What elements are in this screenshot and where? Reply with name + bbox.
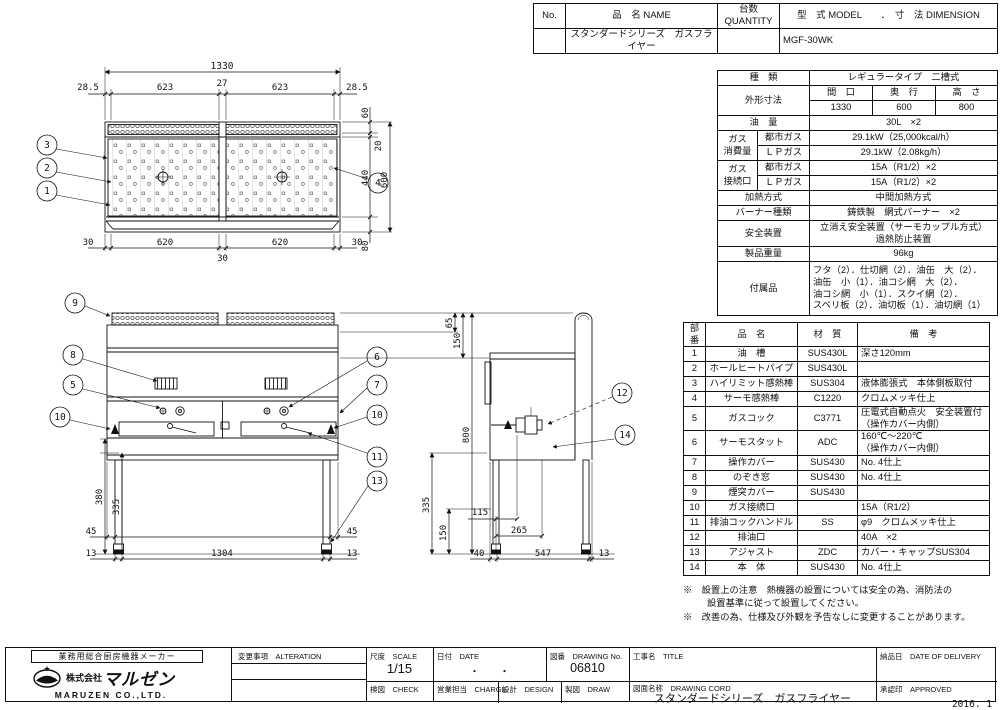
spec-burner-value: 鋳鉄製 網式バーナー ×2 (810, 206, 998, 221)
parts-row: 12排油口40A ×2 (684, 530, 990, 545)
dwg-no-value: 06810 (546, 661, 629, 675)
date-value: ・ ・ (433, 663, 546, 678)
spec-use-city-value: 29.1kW（25,000kcal/h） (810, 131, 998, 146)
part-name: ハイリミット感熱棒 (706, 377, 798, 392)
part-note: クロムメッキ仕上 (858, 392, 990, 407)
dim-overall-width: 1330 (211, 61, 234, 72)
part-mat: SUS430L (798, 362, 858, 377)
part-mat: SUS430 (798, 470, 858, 485)
balloon-6: 6 (374, 352, 380, 363)
charge-label: 営業担当 CHARGE (437, 684, 507, 695)
part-mat: SS (798, 515, 858, 530)
part-name: ガス接続口 (706, 500, 798, 515)
part-name: のぞき窓 (706, 470, 798, 485)
dim-tank1-width: 623 (157, 83, 173, 93)
part-mat: SUS304 (798, 377, 858, 392)
part-name: 本 体 (706, 560, 798, 575)
company-prefix: 株式会社 (66, 671, 102, 684)
dim-front-inset: 40 (474, 549, 485, 559)
dim-back-inset: 13 (599, 549, 610, 559)
part-mat (798, 500, 858, 515)
spec-heat-value: 中間加熱方式 (810, 191, 998, 206)
top-view (88, 67, 392, 251)
dim-drain-offset: 265 (511, 526, 527, 536)
part-no: 9 (684, 485, 706, 500)
spec-weight-label: 製品重量 (718, 247, 810, 262)
parts-row: 11排油コックハンドルSSφ9 クロムメッキ仕上 (684, 515, 990, 530)
balloon-5: 5 (70, 380, 76, 391)
dim-top-section: 150 (453, 333, 463, 349)
check-label: 検図 CHECK (370, 684, 419, 695)
issue-date: 2016. 1 (952, 699, 992, 710)
part-note: No. 4仕上 (858, 470, 990, 485)
parts-row: 6サーモスタットADC160℃～220℃ （操作カバー内側） (684, 431, 990, 455)
part-name: アジャスト (706, 545, 798, 560)
part-no: 5 (684, 407, 706, 431)
header-qty-value (718, 28, 780, 53)
parts-col-mat: 材 質 (798, 323, 858, 347)
balloon-8: 8 (70, 350, 76, 361)
alteration-label: 変更事項 ALTERATION (238, 651, 321, 662)
parts-row: 10ガス接続口15A（R1/2） (684, 500, 990, 515)
part-mat: SUS430L (798, 347, 858, 362)
parts-row: 2ホールヒートパイプSUS430L (684, 362, 990, 377)
dim-height-gas: 335 (112, 499, 122, 515)
spec-conn-lp-value: 15A（R1/2）×2 (810, 176, 998, 191)
header-col-name: 品 名 NAME (566, 4, 718, 29)
parts-row: 9煙突カバーSUS430 (684, 485, 990, 500)
project-title-label: 工事名 TITLE (633, 651, 683, 662)
note-line-1: ※ 設置上の注意 熱機器の設置については安全の為、消防法の (683, 584, 995, 597)
drawing-sheet: No. 品 名 NAME 台数 QUANTITY 型 式 MODEL ． 寸 法… (0, 0, 1000, 710)
spec-dim-w-label: 間 口 (810, 86, 873, 101)
dim-left-margin: 28.5 (77, 83, 99, 93)
dim-bottom-left: 30 (83, 238, 94, 248)
dim-side-leg-height: 150 (439, 525, 449, 541)
gas-cock-assembly-icon (491, 407, 542, 434)
part-note (858, 362, 990, 377)
spec-gas-conn-label: ガス 接続口 (718, 161, 758, 191)
part-no: 2 (684, 362, 706, 377)
dim-leg-width-left: 13 (86, 549, 97, 559)
note-line-3: ※ 改善の為、仕様及び外観を予告なしに変更することがあります。 (683, 611, 995, 624)
part-name: 油 槽 (706, 347, 798, 362)
spec-conn-city-label: 都市ガス (758, 161, 810, 176)
part-mat: C3771 (798, 407, 858, 431)
design-label: 設計 DESIGN (502, 684, 553, 695)
parts-row: 7操作カバーSUS430No. 4仕上 (684, 455, 990, 470)
chimney-outline (575, 313, 592, 460)
dim-depth-rear: 60 (361, 108, 371, 119)
spec-oil-value: 30L ×2 (810, 116, 998, 131)
dim-bottom-tank2: 620 (272, 238, 288, 248)
installation-notes: ※ 設置上の注意 熱機器の設置については安全の為、消防法の 設置基準に従って設置… (683, 584, 995, 624)
spec-kind-label: 種 類 (718, 71, 810, 86)
part-no: 12 (684, 530, 706, 545)
part-no: 6 (684, 431, 706, 455)
part-mat: C1220 (798, 392, 858, 407)
part-mat (798, 530, 858, 545)
spec-dim-w-value: 1330 (810, 101, 873, 116)
part-no: 7 (684, 455, 706, 470)
balloon-4: 4 (375, 178, 381, 189)
spec-oil-label: 油 量 (718, 116, 810, 131)
spec-safety-value: 立消え安全装置（サーモカップル方式） 過熱防止装置 (810, 221, 998, 247)
drawing-area: 1330 28.5 623 27 623 28.5 30 620 620 30 … (0, 45, 660, 645)
drain-cock-handle-icon (168, 424, 311, 434)
parts-row: 4サーモ感熱棒C1220クロムメッキ仕上 (684, 392, 990, 407)
part-note: 深さ120mm (858, 347, 990, 362)
part-note: No. 4仕上 (858, 560, 990, 575)
front-view (90, 313, 573, 562)
spec-dim-label: 外形寸法 (718, 86, 810, 116)
front-view-dim-lines (100, 313, 573, 562)
parts-col-name: 品 名 (706, 323, 798, 347)
delivery-date-label: 納品日 DATE OF DELIVERY (880, 651, 981, 662)
part-no: 8 (684, 470, 706, 485)
gas-inlet-marker-icon (111, 424, 119, 434)
parts-row: 1油 槽SUS430L深さ120mm (684, 347, 990, 362)
spec-gas-use-label: ガス 消費量 (718, 131, 758, 161)
dim-depth-front: 80 (361, 241, 371, 252)
part-note: φ9 クロムメッキ仕上 (858, 515, 990, 530)
balloon-7: 7 (374, 380, 380, 391)
dim-leg-inset-left: 45 (86, 527, 97, 537)
part-note: 圧電式自動点火 安全装置付 （操作カバー内側） (858, 407, 990, 431)
part-name: ホールヒートパイプ (706, 362, 798, 377)
part-name: 操作カバー (706, 455, 798, 470)
spec-dim-d-value: 600 (873, 101, 936, 116)
spec-dim-d-label: 奥 行 (873, 86, 936, 101)
spec-safety-label: 安全装置 (718, 221, 810, 247)
spec-kind-value: レギュラータイプ 二槽式 (810, 71, 998, 86)
approved-label: 承認印 APPROVED (880, 684, 952, 695)
gas-inlet-marker-icon (327, 424, 335, 434)
maker-tagline: 業務用総合厨房機器メーカー (31, 650, 203, 663)
model-number: MGF-30WK (780, 28, 998, 53)
spec-weight-value: 96kg (810, 247, 998, 262)
balloon-11: 11 (371, 452, 383, 463)
dim-bottom-tank1: 620 (157, 238, 173, 248)
spec-dim-h-label: 高 さ (936, 86, 998, 101)
part-mat: ZDC (798, 545, 858, 560)
part-note: 160℃～220℃ （操作カバー内側） (858, 431, 990, 455)
parts-col-note: 備 考 (858, 323, 990, 347)
company-block: 業務用総合厨房機器メーカー 株式会社 マルゼン MARUZEN CO.,LTD. (6, 648, 231, 703)
part-note: 15A（R1/2） (858, 500, 990, 515)
part-note: No. 4仕上 (858, 455, 990, 470)
dim-height-drain: 380 (95, 489, 105, 505)
draw-label: 製図 DRAW (565, 684, 610, 695)
part-no: 4 (684, 392, 706, 407)
spec-table: 種 類 レギュラータイプ 二槽式 外形寸法 間 口 奥 行 高 さ 1330 6… (717, 70, 998, 316)
balloon-12: 12 (616, 388, 627, 399)
dim-leg-width-right: 13 (347, 549, 358, 559)
balloon-2: 2 (44, 163, 50, 174)
part-name: ガスコック (706, 407, 798, 431)
maruzen-logo-icon (32, 666, 62, 688)
parts-row: 14本 体SUS430No. 4仕上 (684, 560, 990, 575)
dim-depth-total: 600 (380, 172, 390, 188)
parts-row: 3ハイリミット感熱棒SUS304液体膨張式 本体側板取付 (684, 377, 990, 392)
burner-vent-icon (155, 378, 177, 389)
balloon-1: 1 (44, 186, 50, 197)
part-name: サーモスタット (706, 431, 798, 455)
balloon-10-left: 10 (54, 412, 66, 423)
part-name: サーモ感熱棒 (706, 392, 798, 407)
header-col-qty: 台数 QUANTITY (718, 4, 780, 29)
part-note: 40A ×2 (858, 530, 990, 545)
spec-lp-gas-label: ＬＰガス (758, 146, 810, 161)
note-line-2: 設置基準に従って設置してください。 (683, 597, 995, 610)
part-no: 3 (684, 377, 706, 392)
dim-side-leg-span: 547 (535, 549, 551, 559)
part-no: 13 (684, 545, 706, 560)
part-name: 煙突カバー (706, 485, 798, 500)
part-no: 11 (684, 515, 706, 530)
part-mat: SUS430 (798, 560, 858, 575)
spec-acc-label: 付属品 (718, 262, 810, 316)
part-note (858, 485, 990, 500)
side-view-dim-lines (429, 435, 592, 562)
dim-depth-flange: 20 (374, 141, 384, 152)
dim-center-gap: 27 (217, 79, 228, 89)
spec-use-lp-value: 29.1kW（2.08kg/h） (810, 146, 998, 161)
header-col-model: 型 式 MODEL ． 寸 法 DIMENSION (780, 4, 998, 29)
dim-bottom-center: 30 (217, 254, 228, 264)
balloon-13: 13 (371, 476, 382, 487)
dim-side-gas-height: 335 (422, 497, 432, 513)
part-note: カバー・キャップSUS304 (858, 545, 990, 560)
parts-row: 8のぞき窓SUS430No. 4仕上 (684, 470, 990, 485)
parts-col-no: 部番 (684, 323, 706, 347)
parts-row: 5ガスコックC3771圧電式自動点火 安全装置付 （操作カバー内側） (684, 407, 990, 431)
part-name: 排油口 (706, 530, 798, 545)
dim-leg-span: 1304 (211, 549, 233, 559)
spec-dim-h-value: 800 (936, 101, 998, 116)
part-mat: SUS430 (798, 455, 858, 470)
pilot-knob-icons (160, 407, 288, 415)
spec-conn-city-value: 15A（R1/2）×2 (810, 161, 998, 176)
parts-table: 部番 品 名 材 質 備 考 1油 槽SUS430L深さ120mm 2ホールヒー… (683, 322, 990, 576)
spec-acc-value: フタ（2）．仕切網（2）．油缶 大（2）． 油缶 小（1）．油コシ網 大（2）．… (810, 262, 998, 316)
date-label: 日付 DATE (437, 651, 479, 662)
dim-tank2-width: 623 (272, 83, 288, 93)
part-name: 排油コックハンドル (706, 515, 798, 530)
balloon-14: 14 (619, 430, 631, 441)
part-no: 1 (684, 347, 706, 362)
company-name: マルゼン (103, 665, 175, 690)
dim-chimney-height: 65 (445, 318, 455, 329)
parts-row: 13アジャストZDCカバー・キャップSUS304 (684, 545, 990, 560)
dim-height-total: 800 (462, 427, 472, 443)
dim-right-margin: 28.5 (346, 83, 368, 93)
part-note: 液体膨張式 本体側板取付 (858, 377, 990, 392)
dim-gas-offset: 115 (472, 508, 488, 518)
spec-conn-lp-label: ＬＰガス (758, 176, 810, 191)
part-no: 10 (684, 500, 706, 515)
burner-vent-icon (265, 378, 287, 389)
title-block: 業務用総合厨房機器メーカー 株式会社 マルゼン MARUZEN CO.,LTD.… (5, 647, 996, 702)
spec-burner-label: バーナー種類 (718, 206, 810, 221)
side-view (429, 313, 615, 562)
part-mat: ADC (798, 431, 858, 455)
company-name-en: MARUZEN CO.,LTD. (6, 690, 216, 700)
balloon-9: 9 (72, 298, 78, 309)
dwg-name-value: スタンダードシリーズ ガスフライヤー (629, 690, 876, 706)
dim-leg-inset-right: 45 (347, 527, 358, 537)
spec-city-gas-label: 都市ガス (758, 131, 810, 146)
spec-heat-label: 加熱方式 (718, 191, 810, 206)
part-mat: SUS430 (798, 485, 858, 500)
part-no: 14 (684, 560, 706, 575)
scale-value: 1/15 (366, 661, 433, 676)
header-col-no: No. (534, 4, 566, 29)
balloon-10-right: 10 (371, 410, 383, 421)
balloon-3: 3 (44, 140, 50, 151)
